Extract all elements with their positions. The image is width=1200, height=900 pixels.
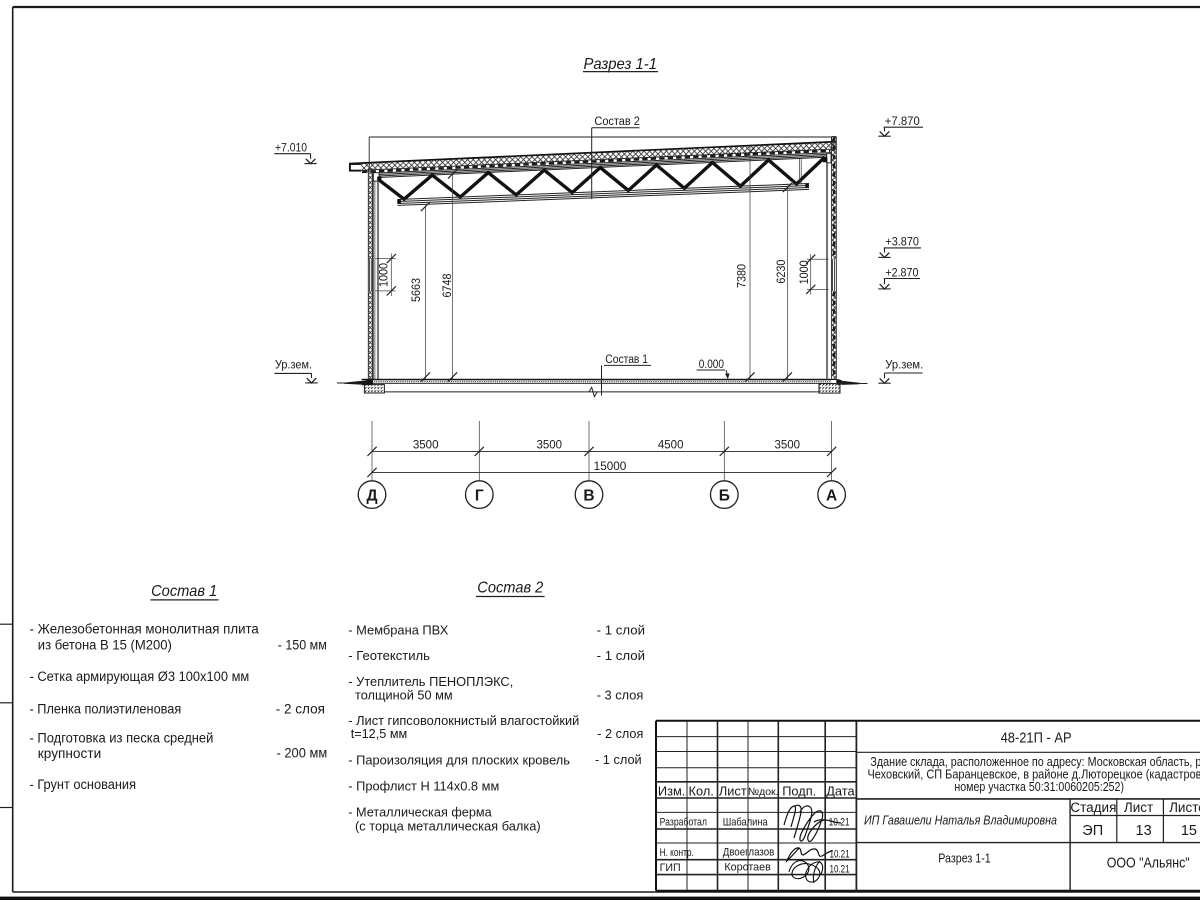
svg-text:толщиной 50 мм: толщиной 50 мм <box>355 688 453 703</box>
svg-text:6748: 6748 <box>442 274 454 298</box>
svg-text:- Сетка армирующая Ø3 100х100: - Сетка армирующая Ø3 100х100 мм <box>30 669 250 684</box>
svg-text:- 2 слоя: - 2 слоя <box>597 726 643 741</box>
svg-text:1000: 1000 <box>799 260 811 284</box>
svg-text:10.21: 10.21 <box>830 863 850 875</box>
svg-text:- Пленка полиэтиленовая: - Пленка полиэтиленовая <box>30 702 182 717</box>
svg-text:+2.870: +2.870 <box>885 267 918 279</box>
svg-text:ИП Гавашели Наталья Владимиров: ИП Гавашели Наталья Владимировна <box>864 812 1057 827</box>
svg-text:Дата: Дата <box>826 783 855 798</box>
svg-text:крупности: крупности <box>38 746 101 761</box>
svg-text:+7.870: +7.870 <box>885 116 920 128</box>
svg-text:t=12,5 мм: t=12,5 мм <box>351 726 408 741</box>
svg-text:№док.: №док. <box>748 786 779 798</box>
svg-text:48-21П - АР: 48-21П - АР <box>1001 730 1072 746</box>
svg-text:В: В <box>583 487 594 504</box>
svg-text:Лист: Лист <box>719 783 747 798</box>
svg-text:Состав 1: Состав 1 <box>151 583 217 600</box>
svg-text:- 2 слоя: - 2 слоя <box>276 702 325 717</box>
svg-text:Изм.: Изм. <box>658 783 685 798</box>
svg-text:- Пароизоляция для плоских кро: - Пароизоляция для плоских кровель <box>348 753 570 768</box>
svg-text:Разрез 1-1: Разрез 1-1 <box>938 851 991 866</box>
svg-text:3500: 3500 <box>537 440 563 452</box>
svg-text:+7.010: +7.010 <box>275 143 307 155</box>
svg-text:- Подготовка из песка средней: - Подготовка из песка средней <box>30 731 214 746</box>
svg-text:номер участка 50:31:0060205:25: номер участка 50:31:0060205:252) <box>954 779 1124 794</box>
svg-text:Н. контр.: Н. контр. <box>660 847 694 859</box>
svg-text:Стадия: Стадия <box>1070 800 1116 815</box>
svg-text:Разработал: Разработал <box>660 817 707 829</box>
svg-text:(с торца металлическая балка): (с торца металлическая балка) <box>355 819 541 834</box>
svg-text:ЭП: ЭП <box>1082 823 1103 839</box>
svg-text:15: 15 <box>1181 823 1197 839</box>
svg-text:Ур.зем.: Ур.зем. <box>275 360 312 372</box>
svg-text:из бетона В 15 (М200): из бетона В 15 (М200) <box>38 637 172 652</box>
svg-text:0.000: 0.000 <box>699 359 724 371</box>
svg-text:Ур.зем.: Ур.зем. <box>885 360 923 372</box>
svg-text:А: А <box>826 487 837 504</box>
svg-text:7380: 7380 <box>736 264 748 288</box>
svg-text:Кол.: Кол. <box>689 783 714 798</box>
svg-text:ООО "Альянс": ООО "Альянс" <box>1107 856 1190 872</box>
svg-text:+3.870: +3.870 <box>885 237 919 249</box>
svg-text:- 1 слой: - 1 слой <box>597 648 645 663</box>
svg-text:15000: 15000 <box>594 461 627 473</box>
svg-text:- Грунт основания: - Грунт основания <box>30 777 137 792</box>
svg-text:- Геотекстиль: - Геотекстиль <box>348 648 430 663</box>
svg-text:- Профлист Н 114х0.8 мм: - Профлист Н 114х0.8 мм <box>348 779 499 794</box>
svg-text:Состав 1: Состав 1 <box>605 354 648 366</box>
svg-text:1000: 1000 <box>379 263 391 287</box>
svg-text:Коротаев: Коротаев <box>724 862 771 874</box>
svg-text:Б: Б <box>719 487 730 504</box>
svg-text:3500: 3500 <box>775 440 801 452</box>
svg-text:ГИП: ГИП <box>660 862 681 874</box>
svg-text:Подп.: Подп. <box>782 783 816 798</box>
svg-text:Состав 2: Состав 2 <box>594 116 640 128</box>
svg-text:Листов: Листов <box>1169 800 1200 815</box>
svg-text:5663: 5663 <box>411 278 423 302</box>
svg-text:Состав 2: Состав 2 <box>477 580 543 597</box>
svg-text:Шабалина: Шабалина <box>723 816 769 828</box>
svg-text:3500: 3500 <box>413 440 439 452</box>
svg-text:- 1 слой: - 1 слой <box>597 623 645 638</box>
svg-text:- Железобетонная монолитная п: - Железобетонная монолитная плита <box>30 622 260 637</box>
svg-text:- 3 слоя: - 3 слоя <box>597 688 644 703</box>
svg-text:Г: Г <box>475 487 484 504</box>
svg-text:- 200 мм: - 200 мм <box>277 746 328 761</box>
svg-text:Двоеглазов: Двоеглазов <box>723 846 775 858</box>
svg-text:- Металлическая ферма: - Металлическая ферма <box>348 805 492 820</box>
svg-text:13: 13 <box>1136 823 1152 839</box>
svg-text:- 150 мм: - 150 мм <box>278 637 327 652</box>
svg-text:Разрез 1-1: Разрез 1-1 <box>584 56 658 73</box>
svg-text:Лист: Лист <box>1124 800 1153 815</box>
svg-text:- Мембрана ПВХ: - Мембрана ПВХ <box>348 623 448 638</box>
svg-text:4500: 4500 <box>658 440 684 452</box>
svg-text:6230: 6230 <box>776 260 788 284</box>
svg-text:10.21: 10.21 <box>830 848 850 860</box>
svg-text:Д: Д <box>366 487 377 504</box>
svg-text:- 1 слой: - 1 слой <box>595 752 642 767</box>
